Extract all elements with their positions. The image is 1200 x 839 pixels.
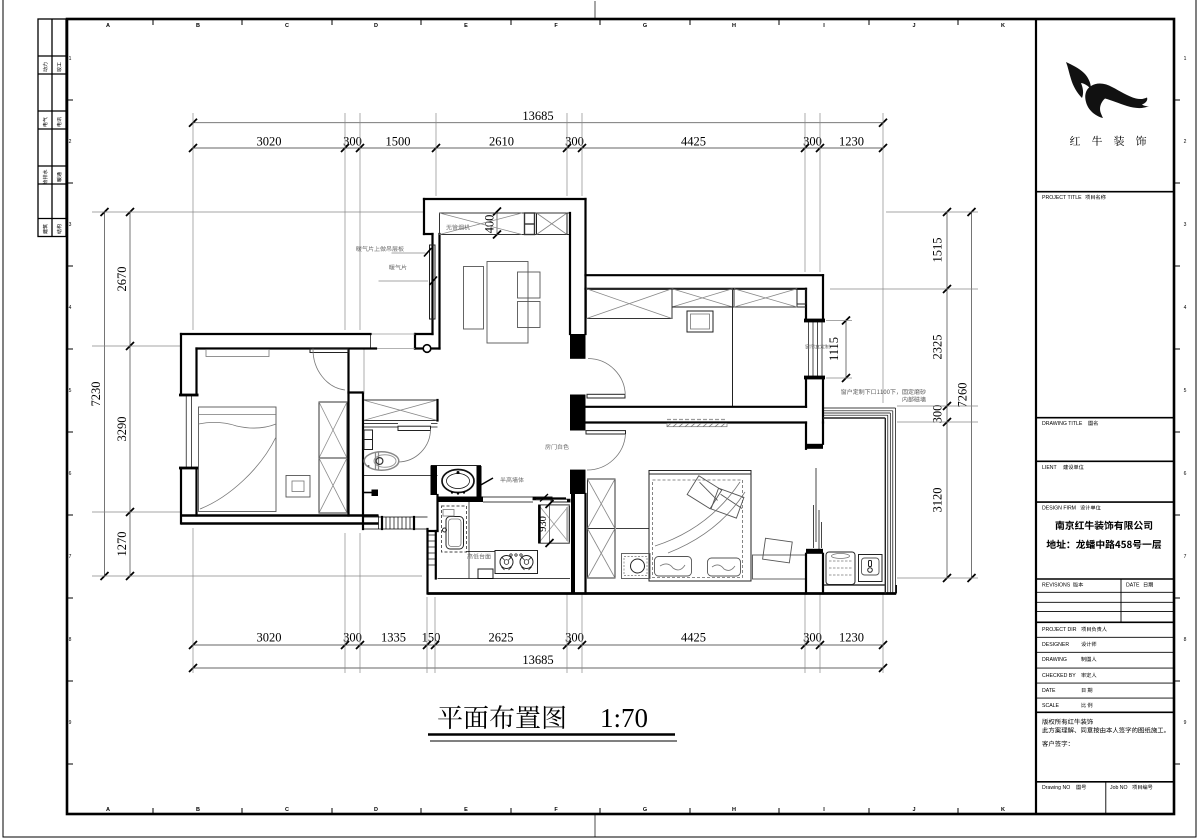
svg-text:7: 7 [1184,554,1187,560]
svg-text:A: A [106,807,110,813]
svg-text:300: 300 [803,631,822,645]
svg-text:2625: 2625 [489,631,514,645]
svg-text:5: 5 [1184,388,1187,394]
svg-text:C: C [285,807,289,813]
svg-text:DATE: DATE [1126,583,1140,589]
svg-text:1230: 1230 [839,135,864,149]
svg-text:3020: 3020 [257,135,282,149]
svg-text:Job NO: Job NO [1110,785,1128,791]
svg-text:J: J [912,807,915,813]
svg-text:E: E [464,23,468,29]
svg-text:9: 9 [69,720,72,726]
svg-text:4: 4 [1184,305,1187,311]
svg-text:D: D [374,807,378,813]
svg-text:300: 300 [565,631,584,645]
svg-text:H: H [732,23,736,29]
svg-text:DESIGNER: DESIGNER [1042,642,1069,648]
svg-text:H: H [732,807,736,813]
svg-text:1: 1 [1184,56,1187,62]
svg-text:300: 300 [565,135,584,149]
svg-text:13685: 13685 [522,653,553,667]
svg-text:PROJECT DIR: PROJECT DIR [1042,627,1077,633]
svg-text:G: G [643,23,647,29]
svg-text:400: 400 [483,215,497,234]
svg-text:Drawing NO: Drawing NO [1042,785,1070,791]
svg-text:1: 1 [69,56,72,62]
svg-text:B: B [196,807,200,813]
svg-text:CHECKED BY: CHECKED BY [1042,673,1076,679]
svg-text:5: 5 [69,388,72,394]
svg-text:K: K [1001,807,1005,813]
svg-text:3: 3 [1184,222,1187,228]
svg-text:2: 2 [69,139,72,145]
svg-text:J: J [912,23,915,29]
svg-text:300: 300 [343,631,362,645]
svg-text:8: 8 [1184,637,1187,643]
svg-text:300: 300 [343,135,362,149]
svg-text:3: 3 [69,222,72,228]
svg-text:6: 6 [1184,471,1187,477]
svg-text:2325: 2325 [931,335,945,360]
svg-text:1:70: 1:70 [600,703,648,733]
svg-text:4425: 4425 [681,135,706,149]
svg-text:7: 7 [69,554,72,560]
svg-text:930: 930 [538,516,549,532]
svg-text:1500: 1500 [386,135,411,149]
svg-text:D: D [374,23,378,29]
svg-text:G: G [643,807,647,813]
svg-text:150: 150 [422,631,441,645]
svg-text:2: 2 [1184,139,1187,145]
svg-text:DRAWING: DRAWING [1042,657,1067,663]
svg-text:1115: 1115 [827,337,841,361]
svg-text:6: 6 [69,471,72,477]
svg-text:2610: 2610 [489,135,514,149]
svg-text:7260: 7260 [956,383,970,408]
svg-text:1230: 1230 [839,631,864,645]
svg-text:4: 4 [69,305,72,311]
svg-text:4425: 4425 [681,631,706,645]
svg-text:13685: 13685 [522,109,553,123]
svg-text:1515: 1515 [931,238,945,263]
svg-text:8: 8 [69,637,72,643]
svg-text:2670: 2670 [115,267,129,292]
svg-text:300: 300 [803,135,822,149]
svg-text:3120: 3120 [931,488,945,513]
svg-text:DRAWING TITLE: DRAWING TITLE [1042,421,1083,427]
svg-text:300: 300 [931,405,945,424]
svg-text:3020: 3020 [257,631,282,645]
svg-text:9: 9 [1184,720,1187,726]
svg-text:REVISIONS: REVISIONS [1042,583,1071,589]
svg-text:A: A [106,23,110,29]
svg-text:PROJECT TITLE: PROJECT TITLE [1042,195,1082,201]
svg-text:B: B [196,23,200,29]
svg-text:E: E [464,807,468,813]
svg-text:DATE: DATE [1042,688,1056,694]
svg-text:1335: 1335 [381,631,406,645]
svg-text:3290: 3290 [115,417,129,442]
svg-text:LIENT: LIENT [1042,465,1058,471]
svg-text:1270: 1270 [115,532,129,557]
svg-text:7230: 7230 [89,382,103,407]
svg-text:K: K [1001,23,1005,29]
svg-text:SCALE: SCALE [1042,703,1060,709]
svg-text:DESIGN FIRM: DESIGN FIRM [1042,506,1076,512]
svg-text:C: C [285,23,289,29]
